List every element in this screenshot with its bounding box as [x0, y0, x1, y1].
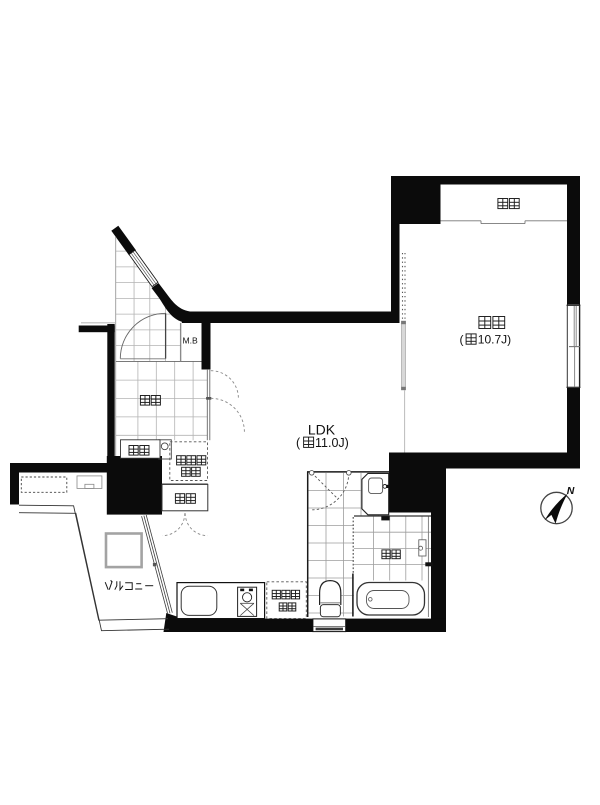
svg-text:N: N: [567, 485, 575, 497]
svg-text:(: (: [460, 333, 464, 347]
svg-text:10.7J): 10.7J): [478, 333, 511, 347]
svg-text:11.0J): 11.0J): [315, 436, 349, 450]
svg-text:LDK: LDK: [308, 421, 336, 437]
svg-text:M.B: M.B: [183, 336, 199, 346]
